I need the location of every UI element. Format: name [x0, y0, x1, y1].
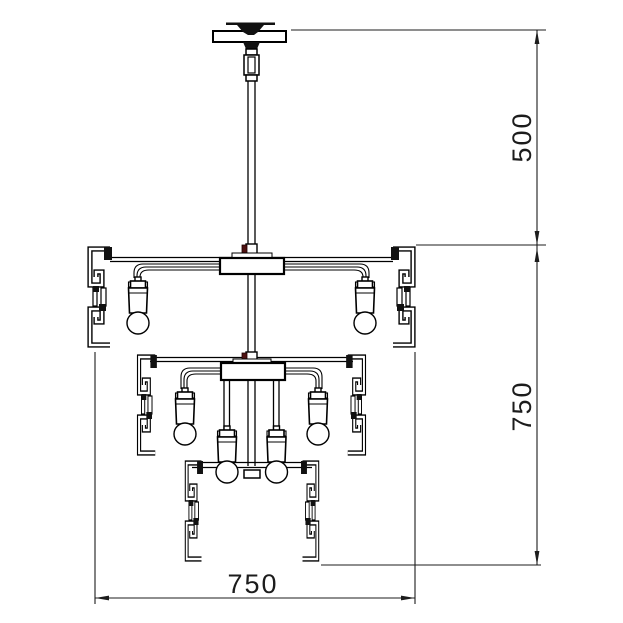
tier2-hub	[221, 352, 285, 380]
dimension-annotations: 500 750 750	[95, 30, 546, 604]
dim-width-label: 750	[227, 569, 278, 599]
center-drop-lamp-right	[266, 426, 288, 483]
tier2-left-assembly	[139, 355, 229, 453]
rod-turnbuckle	[244, 49, 259, 81]
tier3-left-assembly	[187, 461, 203, 559]
center-drop-lamp-left	[216, 426, 238, 483]
tier3-right-assembly	[301, 461, 317, 559]
tier3-arm	[192, 463, 312, 468]
tier3-finial	[244, 470, 260, 478]
tier2-right-assembly	[274, 355, 364, 453]
dimension-arrowheads	[95, 30, 539, 600]
tier1-hub	[220, 244, 284, 274]
chandelier-elevation-drawing: 500 750 750	[0, 0, 623, 623]
dim-lower-height-label: 750	[507, 380, 537, 431]
ceiling-canopy	[213, 23, 286, 50]
dim-upper-height-label: 500	[507, 111, 537, 162]
technical-drawing-page: 500 750 750	[0, 0, 623, 623]
